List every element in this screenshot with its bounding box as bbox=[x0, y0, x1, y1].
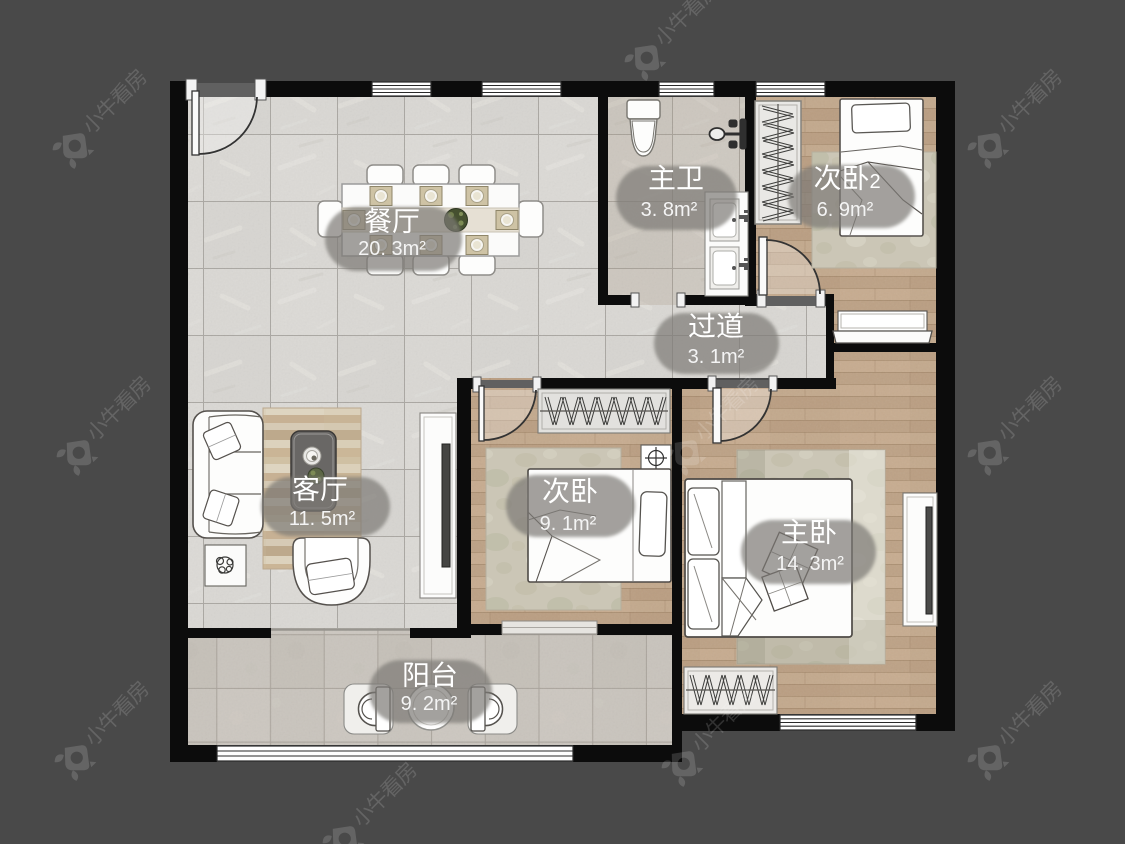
svg-text:2: 2 bbox=[870, 171, 881, 193]
svg-text:11. 5m²: 11. 5m² bbox=[289, 508, 356, 530]
svg-text:3. 8m²: 3. 8m² bbox=[641, 199, 698, 221]
svg-text:9. 2m²: 9. 2m² bbox=[401, 693, 458, 715]
svg-text:3. 1m²: 3. 1m² bbox=[688, 346, 745, 368]
svg-text:6. 9m²: 6. 9m² bbox=[817, 199, 874, 221]
svg-text:20. 3m²: 20. 3m² bbox=[358, 238, 426, 260]
svg-text:9. 1m²: 9. 1m² bbox=[540, 513, 597, 535]
svg-text:14. 3m²: 14. 3m² bbox=[776, 553, 844, 575]
